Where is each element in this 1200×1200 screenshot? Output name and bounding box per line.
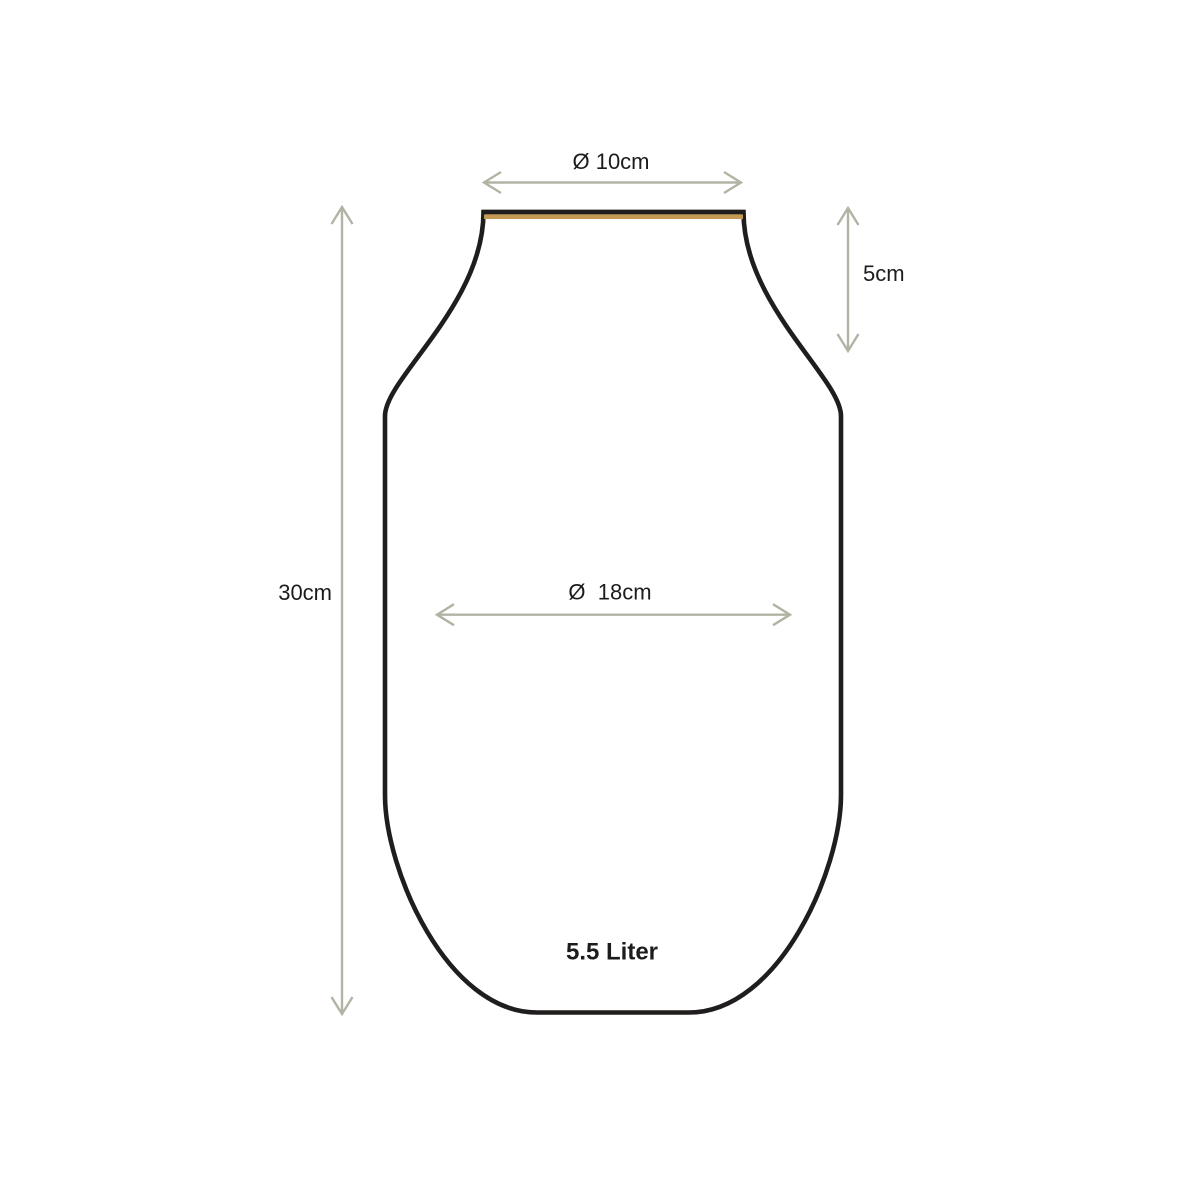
svg-text:Ø 18cm: Ø 18cm <box>568 580 651 605</box>
svg-text:30cm: 30cm <box>278 580 332 605</box>
svg-text:Ø 10cm: Ø 10cm <box>572 149 649 174</box>
svg-text:5cm: 5cm <box>863 261 905 286</box>
svg-text:5.5 Liter: 5.5 Liter <box>566 939 658 966</box>
